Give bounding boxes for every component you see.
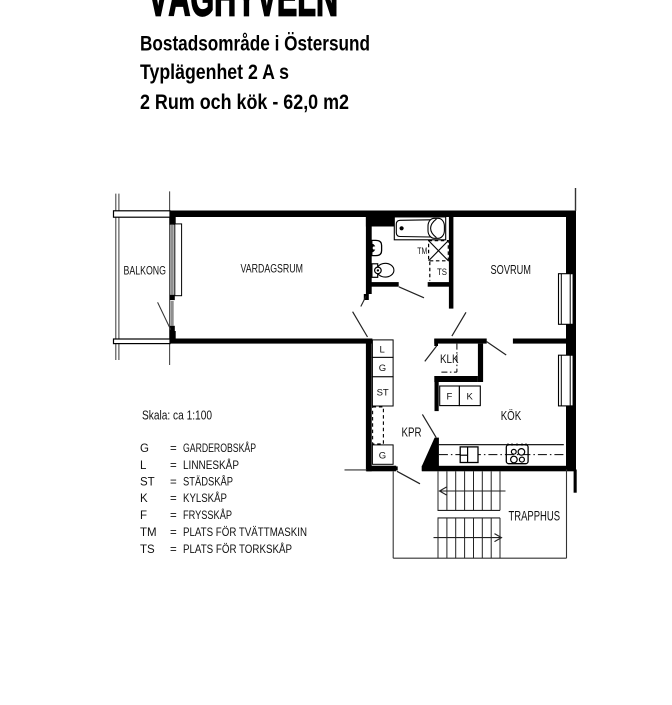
svg-text:TS: TS	[140, 544, 155, 556]
svg-text:=: =	[170, 443, 177, 455]
svg-text:LINNESKÅP: LINNESKÅP	[183, 459, 239, 472]
svg-text:KLK: KLK	[440, 352, 459, 366]
svg-text:=: =	[170, 510, 177, 522]
svg-text:TM: TM	[417, 246, 427, 257]
svg-text:=: =	[170, 493, 177, 505]
svg-text:=: =	[170, 544, 177, 556]
svg-text:TRAPPHUS: TRAPPHUS	[509, 508, 561, 523]
svg-text:ST: ST	[140, 477, 155, 489]
svg-text:Typlägenhet 2 A s: Typlägenhet 2 A s	[140, 60, 289, 84]
svg-text:SOVRUM: SOVRUM	[491, 262, 532, 277]
svg-text:KPR: KPR	[402, 425, 422, 439]
svg-text:FRYSSKÅP: FRYSSKÅP	[183, 509, 232, 522]
svg-text:Skala: ca 1:100: Skala: ca 1:100	[142, 409, 212, 423]
svg-text:G: G	[379, 363, 386, 374]
svg-text:F: F	[447, 392, 453, 403]
svg-text:L: L	[380, 345, 385, 356]
svg-text:PLATS FÖR TVÄTTMASKIN: PLATS FÖR TVÄTTMASKIN	[183, 527, 307, 539]
svg-text:G: G	[140, 443, 149, 455]
svg-text:KYLSKÅP: KYLSKÅP	[183, 492, 227, 505]
svg-text:K: K	[467, 392, 474, 403]
svg-text:STÄDSKÅP: STÄDSKÅP	[183, 476, 233, 489]
svg-text:K: K	[140, 493, 148, 505]
svg-text:ST: ST	[377, 387, 389, 398]
svg-text:VARDAGSRUM: VARDAGSRUM	[241, 264, 304, 276]
svg-text:L: L	[140, 460, 147, 472]
svg-text:TS: TS	[437, 267, 447, 278]
svg-text:G: G	[379, 451, 386, 462]
svg-text:BALKONG: BALKONG	[124, 266, 167, 278]
svg-text:KÖK: KÖK	[501, 409, 522, 423]
svg-text:VÄGHYVELN: VÄGHYVELN	[148, 0, 338, 28]
svg-text:F: F	[140, 510, 147, 522]
svg-text:=: =	[170, 527, 177, 539]
svg-text:GARDEROBSKÅP: GARDEROBSKÅP	[183, 442, 256, 455]
svg-text:=: =	[170, 477, 177, 489]
svg-text:Bostadsområde i Östersund: Bostadsområde i Östersund	[140, 30, 370, 55]
svg-text:TM: TM	[140, 527, 157, 539]
svg-text:=: =	[170, 460, 177, 472]
svg-text:2 Rum och kök - 62,0 m2: 2 Rum och kök - 62,0 m2	[140, 90, 349, 114]
svg-text:PLATS FÖR TORKSKÅP: PLATS FÖR TORKSKÅP	[183, 543, 292, 556]
